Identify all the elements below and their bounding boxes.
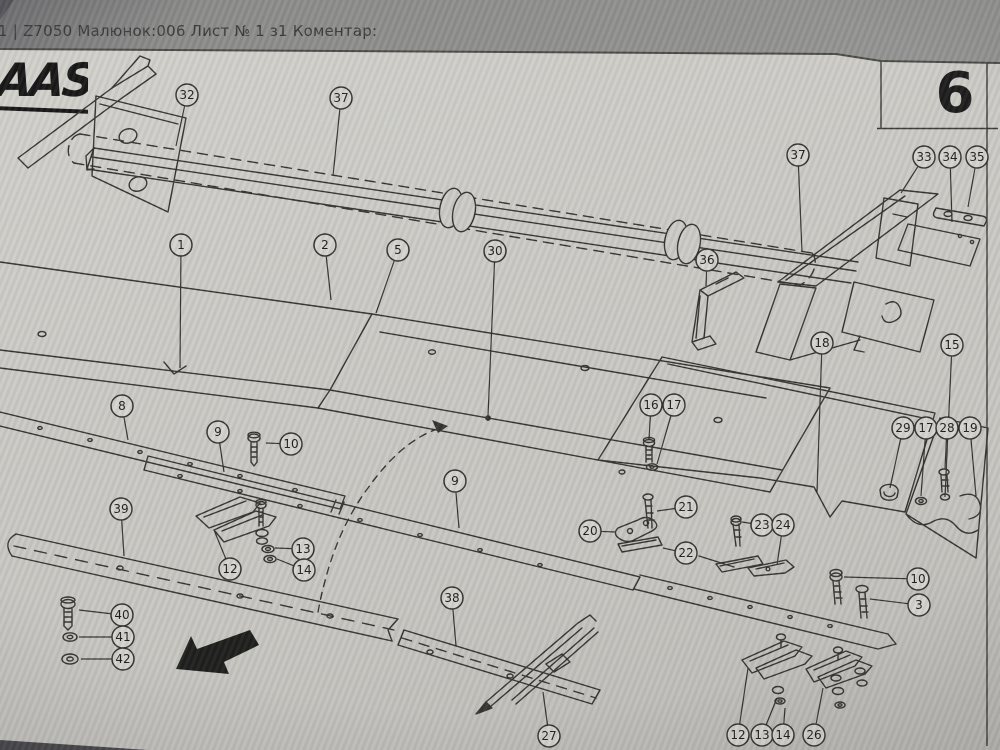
callout-23[interactable]: 23 <box>742 514 773 536</box>
svg-text:42: 42 <box>115 652 130 666</box>
svg-text:20: 20 <box>582 524 597 538</box>
callout-36[interactable]: 36 <box>696 249 718 286</box>
svg-text:40: 40 <box>114 608 129 622</box>
tube-37 <box>68 134 858 285</box>
photo-of-screen: { "header": { "prefix_fragment": "1 |", … <box>0 0 1000 750</box>
callout-1[interactable]: 1 <box>170 234 192 368</box>
callout-14[interactable]: 14 <box>772 708 794 746</box>
svg-text:12: 12 <box>222 562 237 576</box>
motion-arc <box>318 420 448 612</box>
callout-27[interactable]: 27 <box>538 692 560 747</box>
callout-39[interactable]: 39 <box>110 498 132 556</box>
bolt-16-washer-17 <box>619 438 658 475</box>
callout-10[interactable]: 10 <box>266 433 302 455</box>
callout-30[interactable]: 30 <box>484 240 506 416</box>
callout-5[interactable]: 5 <box>376 239 409 313</box>
svg-text:9: 9 <box>214 425 222 439</box>
callout-16[interactable]: 16 <box>640 394 662 439</box>
callout-42[interactable]: 42 <box>81 648 134 670</box>
svg-text:13: 13 <box>295 542 310 556</box>
svg-text:17: 17 <box>666 398 681 412</box>
svg-text:16: 16 <box>643 398 658 412</box>
svg-text:33: 33 <box>916 150 931 164</box>
bolt-10-left <box>248 432 260 466</box>
knife-group-right <box>742 634 872 708</box>
bar-39 <box>8 534 398 641</box>
callout-20[interactable]: 20 <box>579 520 616 542</box>
svg-text:41: 41 <box>115 630 130 644</box>
panel-sheet-left <box>0 262 372 408</box>
svg-text:9: 9 <box>451 474 459 488</box>
diagram-artwork: 3237373334351253036181589101617291728193… <box>0 0 1000 750</box>
panel-sheet-center-30 <box>318 314 830 492</box>
svg-text:14: 14 <box>775 728 790 742</box>
hardware-40-41-42 <box>61 597 78 664</box>
svg-text:37: 37 <box>790 148 805 162</box>
callout-15[interactable]: 15 <box>941 334 963 497</box>
svg-text:3: 3 <box>915 598 923 612</box>
callout-29[interactable]: 29 <box>890 417 914 488</box>
svg-text:34: 34 <box>942 150 957 164</box>
callout-2[interactable]: 2 <box>314 234 336 300</box>
svg-text:19: 19 <box>962 421 977 435</box>
svg-text:2: 2 <box>321 238 329 252</box>
knife-group-left <box>196 497 276 563</box>
svg-text:18: 18 <box>814 336 829 350</box>
svg-text:1: 1 <box>177 238 185 252</box>
bracket-36 <box>692 272 744 350</box>
callout-8[interactable]: 8 <box>111 395 133 440</box>
svg-text:14: 14 <box>296 563 311 577</box>
svg-text:13: 13 <box>754 728 769 742</box>
svg-text:37: 37 <box>333 91 348 105</box>
svg-text:28: 28 <box>939 421 954 435</box>
svg-text:38: 38 <box>444 591 459 605</box>
svg-text:26: 26 <box>806 728 821 742</box>
svg-text:29: 29 <box>895 421 910 435</box>
svg-text:24: 24 <box>775 518 790 532</box>
callout-40[interactable]: 40 <box>79 604 133 626</box>
callout-35[interactable]: 35 <box>966 146 988 207</box>
svg-text:35: 35 <box>969 150 984 164</box>
rail-right-end <box>634 575 896 649</box>
bar-38 <box>398 630 600 704</box>
callout-18[interactable]: 18 <box>811 332 833 492</box>
callout-22[interactable]: 22 <box>663 542 697 564</box>
callout-14[interactable]: 14 <box>277 559 315 581</box>
callout-9[interactable]: 9 <box>207 421 229 472</box>
svg-text:10: 10 <box>283 437 298 451</box>
callout-24[interactable]: 24 <box>772 514 794 565</box>
svg-text:12: 12 <box>730 728 745 742</box>
callout-37[interactable]: 37 <box>330 87 352 176</box>
callout-32[interactable]: 32 <box>176 84 198 146</box>
svg-text:10: 10 <box>910 572 925 586</box>
svg-text:30: 30 <box>487 244 502 258</box>
svg-text:17: 17 <box>918 421 933 435</box>
callout-21[interactable]: 21 <box>657 496 697 518</box>
divider-rod-27 <box>476 615 598 714</box>
svg-text:36: 36 <box>699 253 714 267</box>
svg-text:27: 27 <box>541 729 556 743</box>
svg-text:39: 39 <box>113 502 128 516</box>
callout-26[interactable]: 26 <box>803 688 825 746</box>
bracket-32 <box>18 56 186 212</box>
svg-text:23: 23 <box>754 518 769 532</box>
callout-38[interactable]: 38 <box>441 587 463 646</box>
callout-37[interactable]: 37 <box>787 144 809 252</box>
callout-33[interactable]: 33 <box>901 146 935 193</box>
callout-19[interactable]: 19 <box>959 417 981 496</box>
svg-text:5: 5 <box>394 243 402 257</box>
callout-3[interactable]: 3 <box>870 594 930 616</box>
svg-text:21: 21 <box>678 500 693 514</box>
callout-9[interactable]: 9 <box>444 470 466 528</box>
direction-arrow <box>176 630 259 674</box>
callout-41[interactable]: 41 <box>79 626 134 648</box>
svg-text:8: 8 <box>118 399 126 413</box>
callout-12[interactable]: 12 <box>727 668 749 746</box>
svg-text:32: 32 <box>179 88 194 102</box>
callout-13[interactable]: 13 <box>275 538 314 560</box>
svg-text:22: 22 <box>678 546 693 560</box>
svg-text:15: 15 <box>944 338 959 352</box>
rail-8 <box>0 412 345 509</box>
